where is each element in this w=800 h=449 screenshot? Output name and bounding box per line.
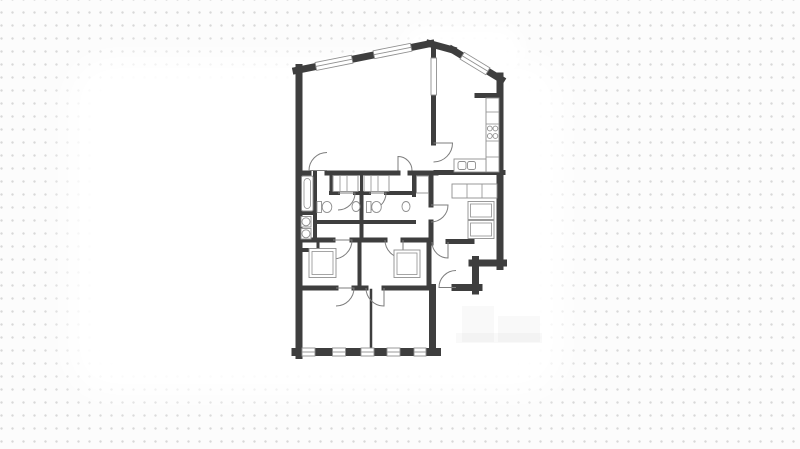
window bbox=[414, 348, 426, 356]
hall-cabinet bbox=[417, 176, 429, 193]
stove-burner bbox=[493, 126, 498, 131]
window bbox=[333, 348, 346, 356]
window bbox=[302, 348, 315, 356]
toilet-bowl bbox=[372, 201, 382, 212]
floor-plan-svg bbox=[0, 0, 800, 449]
basin bbox=[402, 202, 410, 212]
wardrobe-shelf bbox=[333, 176, 358, 192]
basin bbox=[352, 202, 360, 212]
stove-burner bbox=[487, 134, 492, 139]
wardrobe-shelf bbox=[364, 176, 389, 192]
bathtub bbox=[302, 176, 314, 211]
window bbox=[361, 348, 374, 356]
toilet-bowl bbox=[322, 201, 332, 212]
stove-burner bbox=[493, 134, 498, 139]
washing-machine-drum bbox=[302, 218, 310, 226]
walkin-wardrobe bbox=[394, 250, 420, 278]
watermark bbox=[456, 306, 542, 343]
dryer-drum bbox=[302, 230, 310, 238]
kitchen-sink-bowl bbox=[468, 162, 476, 170]
window bbox=[387, 348, 400, 356]
stove-burner bbox=[487, 126, 492, 131]
toilet-tank bbox=[317, 202, 322, 213]
glass-pocket-door bbox=[431, 58, 437, 95]
page-background bbox=[0, 0, 800, 449]
storage-unit bbox=[452, 184, 497, 198]
watermark-block bbox=[456, 333, 542, 343]
walkin-wardrobe bbox=[309, 249, 336, 278]
kitchen-sink-bowl bbox=[458, 162, 466, 170]
toilet-tank bbox=[367, 202, 372, 213]
